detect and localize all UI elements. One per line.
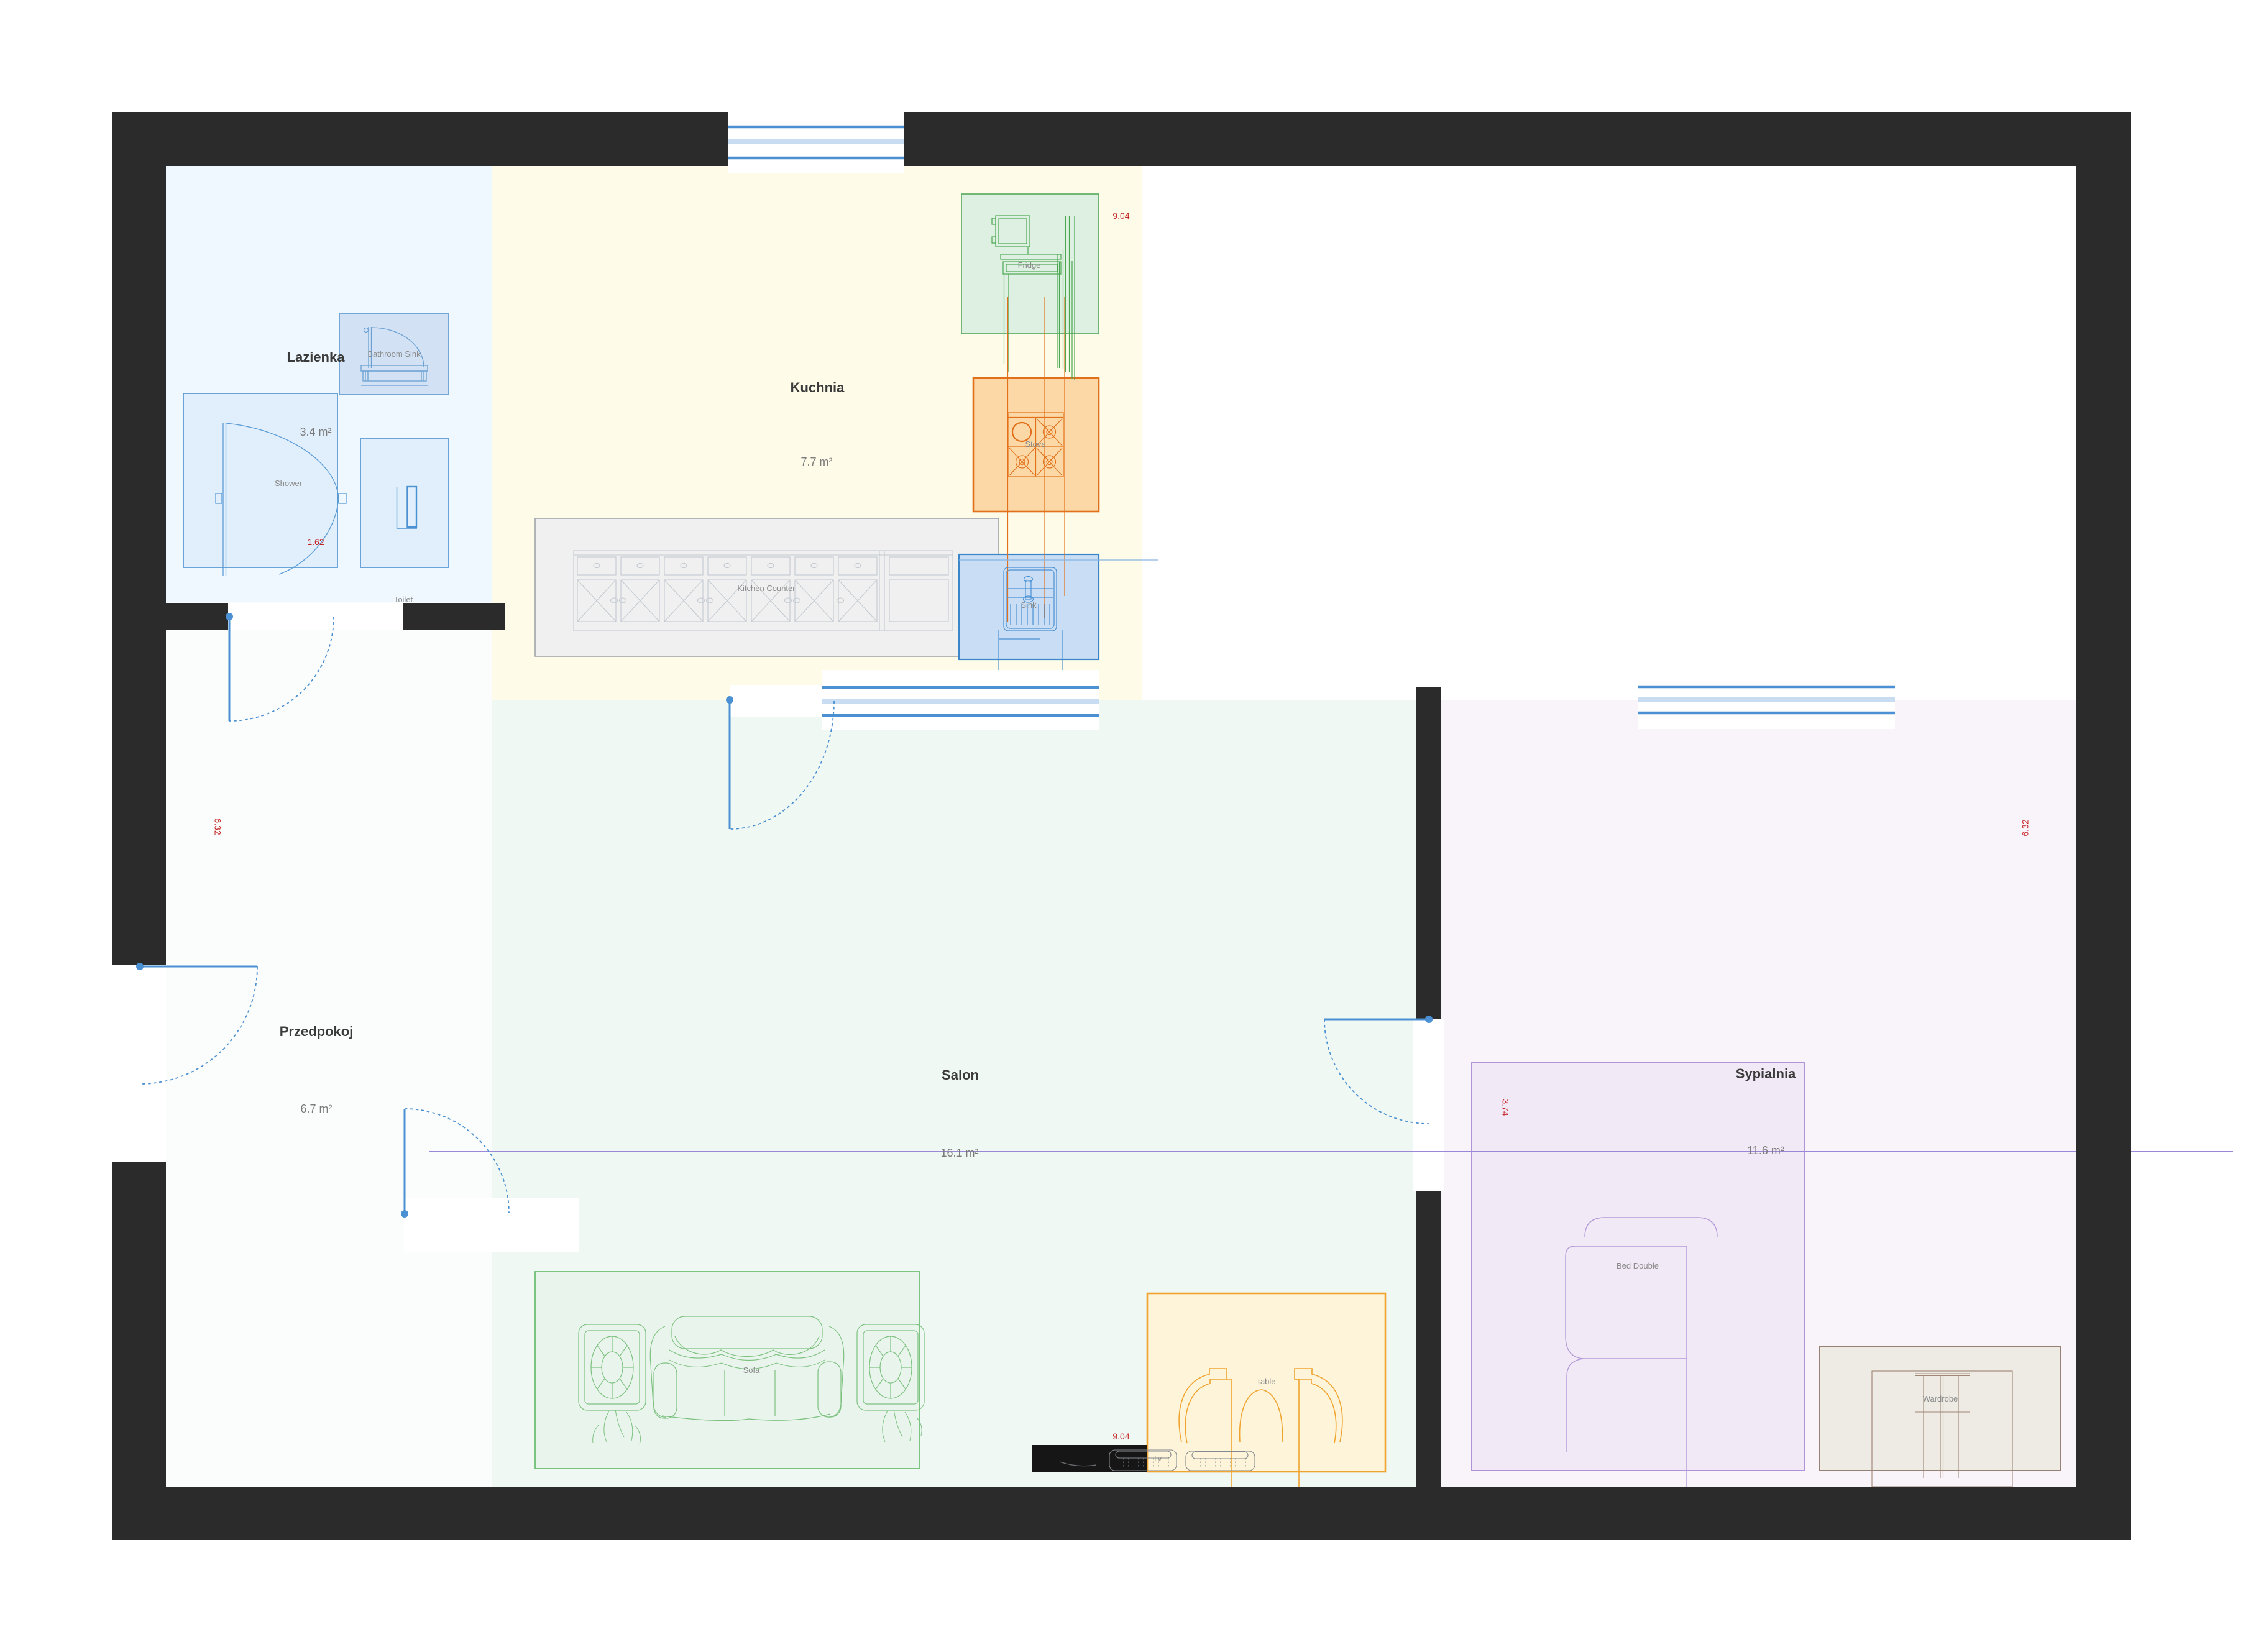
svg-text:Toilet: Toilet (394, 595, 413, 604)
svg-text:Tv: Tv (1153, 1454, 1162, 1463)
svg-text:3.74: 3.74 (1500, 1099, 1510, 1116)
svg-text:7.7 m²: 7.7 m² (800, 456, 832, 468)
svg-text:6.7 m²: 6.7 m² (300, 1103, 332, 1115)
svg-text:Sypialnia: Sypialnia (1736, 1066, 1796, 1081)
svg-text:9.04: 9.04 (1112, 1431, 1129, 1441)
svg-text:6.32: 6.32 (2021, 819, 2030, 836)
svg-text:Bathroom Sink: Bathroom Sink (367, 349, 421, 359)
svg-text:Table: Table (1256, 1377, 1275, 1386)
svg-text:16.1 m²: 16.1 m² (940, 1147, 978, 1159)
svg-text:Sofa: Sofa (743, 1365, 761, 1375)
svg-text:Kitchen Counter: Kitchen Counter (737, 584, 796, 593)
svg-text:11.6 m²: 11.6 m² (1747, 1144, 1784, 1157)
svg-text:Shower: Shower (275, 479, 303, 488)
svg-text:Kuchnia: Kuchnia (791, 380, 845, 395)
svg-text:6.32: 6.32 (213, 818, 222, 835)
svg-text:1.62: 1.62 (307, 537, 324, 547)
svg-text:Stove: Stove (1025, 439, 1045, 449)
svg-text:3.4 m²: 3.4 m² (300, 426, 331, 438)
svg-text:Przedpokoj: Przedpokoj (280, 1024, 354, 1039)
svg-text:Sink: Sink (1021, 600, 1037, 610)
svg-text:Fridge: Fridge (1018, 260, 1041, 270)
svg-text:Wardrobe: Wardrobe (1923, 1394, 1958, 1403)
svg-text:9.04: 9.04 (1112, 211, 1129, 221)
svg-text:Lazienka: Lazienka (287, 349, 346, 365)
svg-text:Salon: Salon (942, 1067, 979, 1083)
svg-text:Bed Double: Bed Double (1617, 1261, 1659, 1270)
